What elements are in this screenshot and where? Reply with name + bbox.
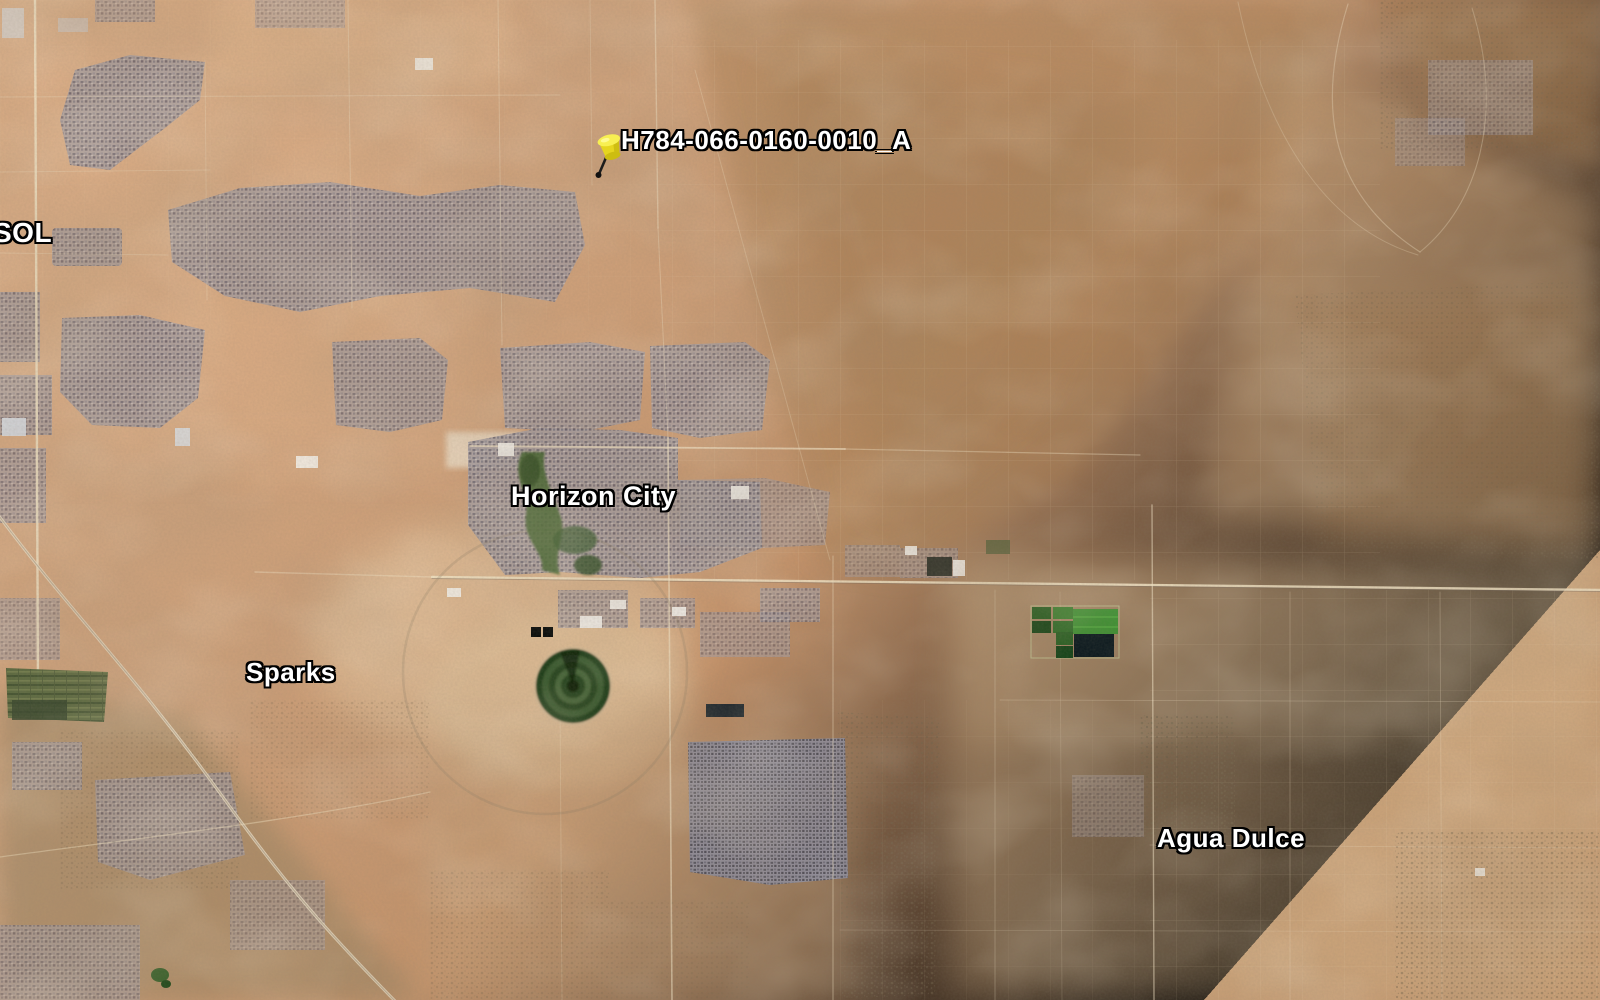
placemark-label[interactable]: H784-066-0160-0010_A — [621, 125, 911, 156]
satellite-map-view[interactable]: SOL H784-066-0160-0010_A Horizon City Sp… — [0, 0, 1600, 1000]
place-label-agua-dulce: Agua Dulce — [1157, 823, 1305, 854]
pushpin-tip-icon — [596, 172, 602, 178]
place-label-horizon-city: Horizon City — [511, 481, 676, 512]
place-label-sol-partial: SOL — [0, 217, 52, 249]
place-label-sparks: Sparks — [246, 657, 336, 688]
